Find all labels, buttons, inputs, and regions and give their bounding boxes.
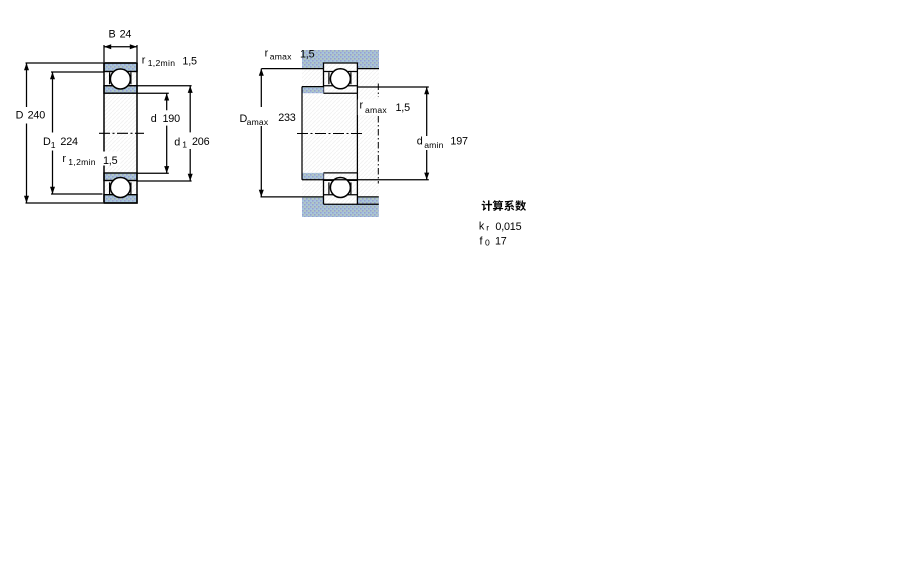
- svg-text:0: 0: [485, 238, 490, 248]
- svg-text:17: 17: [495, 235, 507, 247]
- svg-text:1,5: 1,5: [182, 56, 197, 68]
- svg-text:1,5: 1,5: [103, 155, 118, 167]
- svg-text:1: 1: [51, 140, 56, 150]
- svg-text:240: 240: [28, 109, 46, 121]
- svg-text:1,2min: 1,2min: [148, 58, 176, 68]
- svg-text:D: D: [16, 109, 24, 121]
- svg-text:r: r: [360, 100, 364, 112]
- svg-text:d: d: [417, 136, 423, 148]
- svg-text:r: r: [62, 153, 66, 165]
- svg-text:d: d: [151, 113, 157, 125]
- svg-text:amax: amax: [270, 51, 292, 61]
- svg-text:1: 1: [182, 140, 187, 150]
- svg-text:0,015: 0,015: [495, 221, 521, 233]
- svg-text:d: d: [174, 137, 180, 149]
- svg-text:r: r: [486, 223, 489, 233]
- svg-text:1,5: 1,5: [300, 49, 315, 61]
- svg-text:206: 206: [192, 136, 210, 148]
- svg-text:D: D: [43, 136, 51, 148]
- svg-text:224: 224: [60, 136, 78, 148]
- svg-text:k: k: [479, 221, 485, 233]
- svg-text:amax: amax: [247, 117, 269, 127]
- svg-text:233: 233: [278, 112, 296, 124]
- svg-text:24: 24: [120, 28, 132, 40]
- svg-text:1,5: 1,5: [396, 102, 411, 114]
- svg-text:r: r: [265, 47, 269, 59]
- svg-text:190: 190: [163, 113, 181, 125]
- svg-text:amin: amin: [424, 140, 443, 150]
- svg-text:r: r: [142, 54, 146, 66]
- svg-text:amax: amax: [365, 105, 387, 115]
- svg-text:B: B: [109, 28, 116, 40]
- svg-text:1,2min: 1,2min: [68, 157, 96, 167]
- svg-text:197: 197: [450, 136, 468, 148]
